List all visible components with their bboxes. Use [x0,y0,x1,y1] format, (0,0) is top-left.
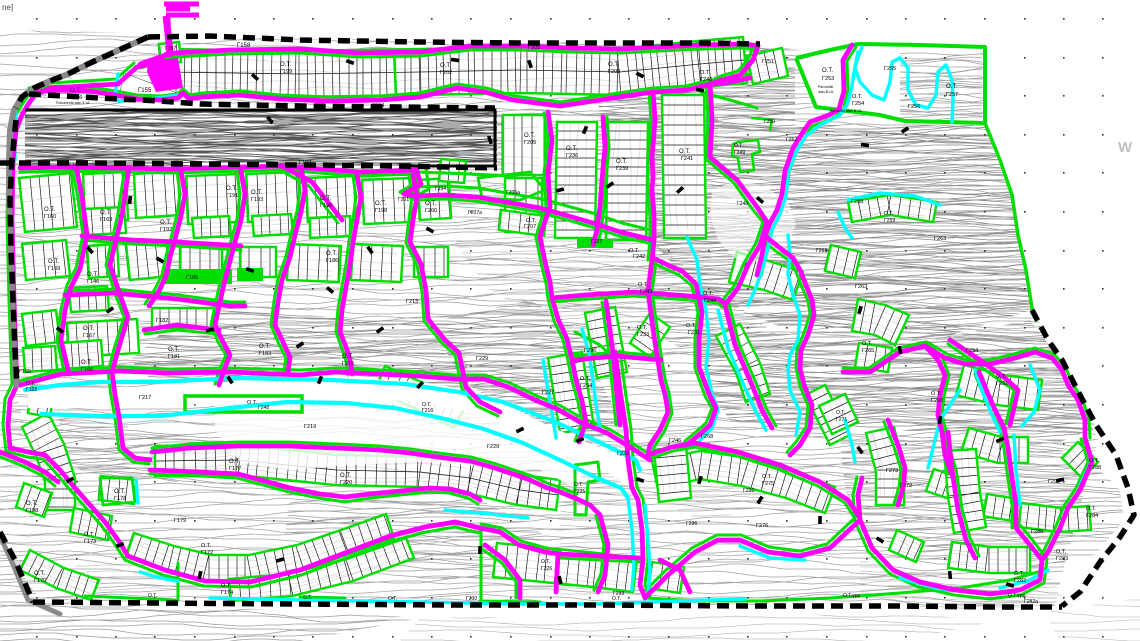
svg-text:W: W [1118,139,1133,156]
svg-text:Ο.Τ.: Ο.Τ. [700,70,711,76]
svg-text:Ο.Τ.: Ο.Τ. [608,62,619,68]
svg-text:Γ271: Γ271 [836,417,847,423]
svg-text:Ο.Τ.: Ο.Τ. [48,259,59,265]
svg-text:Γ186: Γ186 [326,258,338,264]
svg-text:Γ231: Γ231 [688,330,700,336]
svg-text:Ο.Τ.: Ο.Τ. [946,84,957,90]
svg-text:Ο.Τ.: Ο.Τ. [616,159,627,165]
svg-text:Γ208: Γ208 [608,69,620,75]
svg-text:Γ263: Γ263 [855,284,867,290]
svg-text:Ο.Τ.: Ο.Τ. [221,583,232,589]
svg-text:Γ207: Γ207 [524,224,536,230]
svg-text:Γ194: Γ194 [299,160,311,166]
svg-text:Ο.Τ.: Ο.Τ. [83,326,94,332]
svg-text:Ο.Τ.: Ο.Τ. [320,196,331,202]
svg-text:Γ178: Γ178 [114,496,126,502]
svg-text:Γ157: Γ157 [165,46,176,52]
svg-text:Ο.Τ.: Ο.Τ. [114,489,125,495]
svg-text:Γ158: Γ158 [237,43,251,49]
svg-text:Γ236: Γ236 [686,521,697,527]
svg-text:Ο.Τ.: Ο.Τ. [574,482,583,488]
svg-text:Γ227: Γ227 [542,390,554,396]
svg-text:Γ193: Γ193 [251,197,263,203]
svg-text:Ο.Τ.: Ο.Τ. [160,220,171,226]
svg-text:Γ251: Γ251 [762,59,774,65]
svg-text:Γ215: Γ215 [342,361,354,367]
svg-text:Γ207a: Γ207a [468,210,482,216]
svg-text:Γ216: Γ216 [422,408,433,414]
svg-text:Γ172: Γ172 [201,550,213,556]
svg-text:Γ255: Γ255 [884,66,896,72]
svg-text:Γ263: Γ263 [934,236,946,242]
svg-text:Γ246: Γ246 [669,438,681,444]
svg-text:Γ250: Γ250 [764,119,775,125]
svg-text:Γ229: Γ229 [487,444,499,450]
svg-text:Γ192: Γ192 [160,227,172,233]
svg-text:Γ249: Γ249 [734,150,745,156]
svg-text:Γ294: Γ294 [966,348,978,354]
svg-text:Γ196: Γ196 [320,203,332,209]
svg-text:Γ183: Γ183 [259,351,271,357]
svg-text:Ο.Τ.: Ο.Τ. [388,596,397,602]
svg-text:Ο.Τ.: Ο.Τ. [884,211,893,217]
svg-text:Γ243: Γ243 [640,289,652,295]
svg-text:Ο.Τ.: Ο.Τ. [996,374,1007,380]
svg-text:Γ256: Γ256 [908,104,920,110]
svg-text:Ο.Τ.: Ο.Τ. [931,391,942,397]
svg-text:Ο.Τ.: Ο.Τ. [852,94,863,100]
svg-text:Γ236: Γ236 [566,153,578,159]
svg-text:Γ220: Γ220 [340,480,352,486]
svg-text:Ο.Τ.: Ο.Τ. [280,62,291,68]
svg-text:Ο.Τ.: Ο.Τ. [822,68,833,74]
svg-text:Γ234: Γ234 [580,383,592,389]
svg-text:alan B.1A.: alan B.1A. [818,90,834,94]
svg-text:Γ276: Γ276 [756,523,768,529]
svg-text:Pomaventa alan 3.1A: Pomaventa alan 3.1A [56,101,90,105]
svg-text:Γ288: Γ288 [1089,465,1101,471]
svg-text:Ο.Τ.: Ο.Τ. [251,190,262,196]
svg-text:Parovoliki: Parovoliki [818,85,833,89]
svg-text:Γ202: Γ202 [440,70,452,76]
svg-text:Ο.Τ.: Ο.Τ. [247,400,258,406]
svg-text:ne]: ne] [2,3,13,12]
svg-text:Ο.Τ.: Ο.Τ. [303,595,312,601]
svg-text:Γ296: Γ296 [584,348,596,354]
svg-text:Γ179: Γ179 [174,518,186,524]
svg-text:Ο.Τ.: Ο.Τ. [862,341,873,347]
svg-text:Γ170: Γ170 [34,578,46,584]
svg-text:Ο.Τ.: Ο.Τ. [201,543,212,549]
svg-text:Γ242: Γ242 [633,254,645,260]
svg-text:Γ169: Γ169 [48,266,60,272]
svg-text:Ο.Τ.γρρ: Ο.Τ.γρρ [1008,593,1026,599]
svg-text:Ο.Τ.: Ο.Τ. [26,501,37,507]
svg-text:Ο.Τ.: Ο.Τ. [259,344,270,350]
svg-text:Γ205: Γ205 [524,140,536,146]
svg-text:Ο.Τ.: Ο.Τ. [679,149,690,155]
svg-text:Γ290: Γ290 [931,398,943,404]
svg-text:Γ155: Γ155 [138,88,152,94]
svg-text:Γ248: Γ248 [258,405,269,411]
svg-text:Γ252: Γ252 [786,137,797,143]
svg-text:Ο.Τ.: Ο.Τ. [703,291,714,297]
svg-text:Γ272: Γ272 [900,483,912,489]
svg-text:Γ258: Γ258 [851,199,863,205]
svg-text:Γ291: Γ291 [996,381,1008,387]
svg-text:Γ165: Γ165 [19,369,31,375]
svg-text:Γ230: Γ230 [466,596,477,602]
svg-text:Γ160: Γ160 [44,214,56,220]
svg-text:Γ257: Γ257 [946,92,958,98]
svg-text:Γ240: Γ240 [700,77,712,83]
svg-text:Ο.Τ.: Ο.Τ. [168,347,179,353]
svg-text:Γ273: Γ273 [886,468,898,474]
svg-text:Ο.Τ.: Ο.Τ. [566,146,577,152]
svg-text:Γ282: Γ282 [1014,578,1026,584]
svg-text:Γ237: Γ237 [591,239,602,245]
svg-text:Ο.Τ.: Ο.Τ. [342,354,353,360]
svg-text:Ο.Τ.: Ο.Τ. [44,207,55,213]
svg-text:Ο.Τ.: Ο.Τ. [81,360,92,366]
svg-text:Ο.Τ.: Ο.Τ. [638,282,649,288]
svg-text:Ο.Τ.γρρ: Ο.Τ.γρρ [843,593,861,599]
svg-text:Ο.Τ.: Ο.Τ. [34,571,45,577]
svg-text:Γ199: Γ199 [280,69,292,75]
svg-text:Γ282a: Γ282a [1024,599,1038,605]
svg-text:Ο.Τ.: Ο.Τ. [70,88,81,94]
svg-text:Ο.Τ.: Ο.Τ. [425,201,436,207]
svg-text:Γ217: Γ217 [139,395,151,401]
svg-text:Γ233: Γ233 [637,332,649,338]
svg-text:Ο.Τ.: Ο.Τ. [87,272,98,278]
svg-text:Γ232: Γ232 [617,451,629,457]
svg-text:Γ219: Γ219 [304,424,316,430]
svg-text:Ο.Τ.: Ο.Τ. [375,201,386,207]
svg-text:Γ284: Γ284 [1086,513,1098,519]
svg-text:Γ146: Γ146 [87,279,99,285]
svg-text:Γ283: Γ283 [1056,556,1068,562]
svg-text:Γ163: Γ163 [100,217,112,223]
svg-text:Γ213: Γ213 [406,299,418,305]
svg-text:Ο.Τ.: Ο.Τ. [1086,506,1097,512]
svg-text:Ο.Τ.: Ο.Τ. [1014,571,1025,577]
svg-text:Ο.Τ.: Ο.Τ. [148,593,157,599]
svg-text:Ο.Τ.: Ο.Τ. [1089,458,1100,464]
svg-text:Ο.Τ.: Ο.Τ. [541,559,550,565]
svg-text:Γ198: Γ198 [26,508,38,514]
svg-text:Γ226: Γ226 [541,566,552,572]
svg-text:Γ201: Γ201 [398,197,409,203]
svg-text:Γ194: Γ194 [435,186,446,192]
svg-text:Γ296: Γ296 [743,488,754,494]
svg-text:Γ185: Γ185 [186,275,198,281]
svg-text:Ο.Τ.: Ο.Τ. [100,210,111,216]
svg-text:Γ181: Γ181 [168,354,180,360]
svg-text:Ο.Τ.: Ο.Τ. [762,474,773,480]
svg-text:Ο.Τ.: Ο.Τ. [580,376,591,382]
svg-text:Γ244: Γ244 [704,298,716,304]
svg-text:Ο.Τ.: Ο.Τ. [326,251,337,257]
svg-text:Ο.Τ.: Ο.Τ. [524,133,535,139]
svg-text:Γ286: Γ286 [1031,529,1043,535]
svg-text:Parovoliki alan B.1A.: Parovoliki alan B.1A. [830,109,862,113]
svg-text:Γ241: Γ241 [681,156,693,162]
svg-text:Ο.Τ.: Ο.Τ. [340,473,351,479]
svg-text:Ο.Τ.: Ο.Τ. [84,532,95,538]
svg-text:Γ275: Γ275 [762,481,774,487]
svg-text:Γ166: Γ166 [81,367,93,373]
svg-text:Ο.Τ.: Ο.Τ. [226,186,237,192]
svg-text:Γ203: Γ203 [528,45,540,51]
svg-text:Γ200: Γ200 [425,208,437,214]
svg-text:Γ206a: Γ206a [506,190,520,196]
svg-text:Γ292: Γ292 [1048,479,1060,485]
svg-text:Ο.Τ.: Ο.Τ. [1056,549,1067,555]
svg-text:Γ191: Γ191 [226,193,238,199]
svg-text:Γ177: Γ177 [229,466,241,472]
svg-text:Γ268: Γ268 [701,434,713,440]
svg-text:Ο.Τ.: Ο.Τ. [836,410,845,416]
svg-text:Γ225: Γ225 [574,489,585,495]
svg-text:Γ204: Γ204 [372,103,384,109]
svg-text:Γ173: Γ173 [84,539,96,545]
svg-text:Γ198: Γ198 [375,208,387,214]
svg-text:Ο.Τ.: Ο.Τ. [637,325,648,331]
svg-text:Γ229: Γ229 [476,356,488,362]
svg-text:Γ239: Γ239 [616,166,628,172]
svg-text:Γ248: Γ248 [737,201,748,207]
svg-text:Γ166: Γ166 [69,162,80,168]
svg-text:Γ265: Γ265 [862,348,874,354]
svg-text:Γ253: Γ253 [822,76,834,82]
svg-text:Ο.Τ.: Ο.Τ. [734,143,743,149]
svg-text:Γ174: Γ174 [221,590,233,596]
svg-text:Γ167: Γ167 [83,333,95,339]
svg-text:Γ262: Γ262 [816,248,827,254]
svg-text:Γ254: Γ254 [852,101,864,107]
svg-text:Ο.Τ.: Ο.Τ. [686,323,697,329]
svg-text:Ο.Τ.: Ο.Τ. [440,63,451,69]
svg-text:Ο.Τ.: Ο.Τ. [229,459,240,465]
svg-text:Γ182: Γ182 [156,318,168,324]
svg-text:Γ168: Γ168 [26,387,37,393]
svg-text:Ο.Τ.: Ο.Τ. [612,596,621,602]
svg-text:Γ259: Γ259 [884,218,895,224]
